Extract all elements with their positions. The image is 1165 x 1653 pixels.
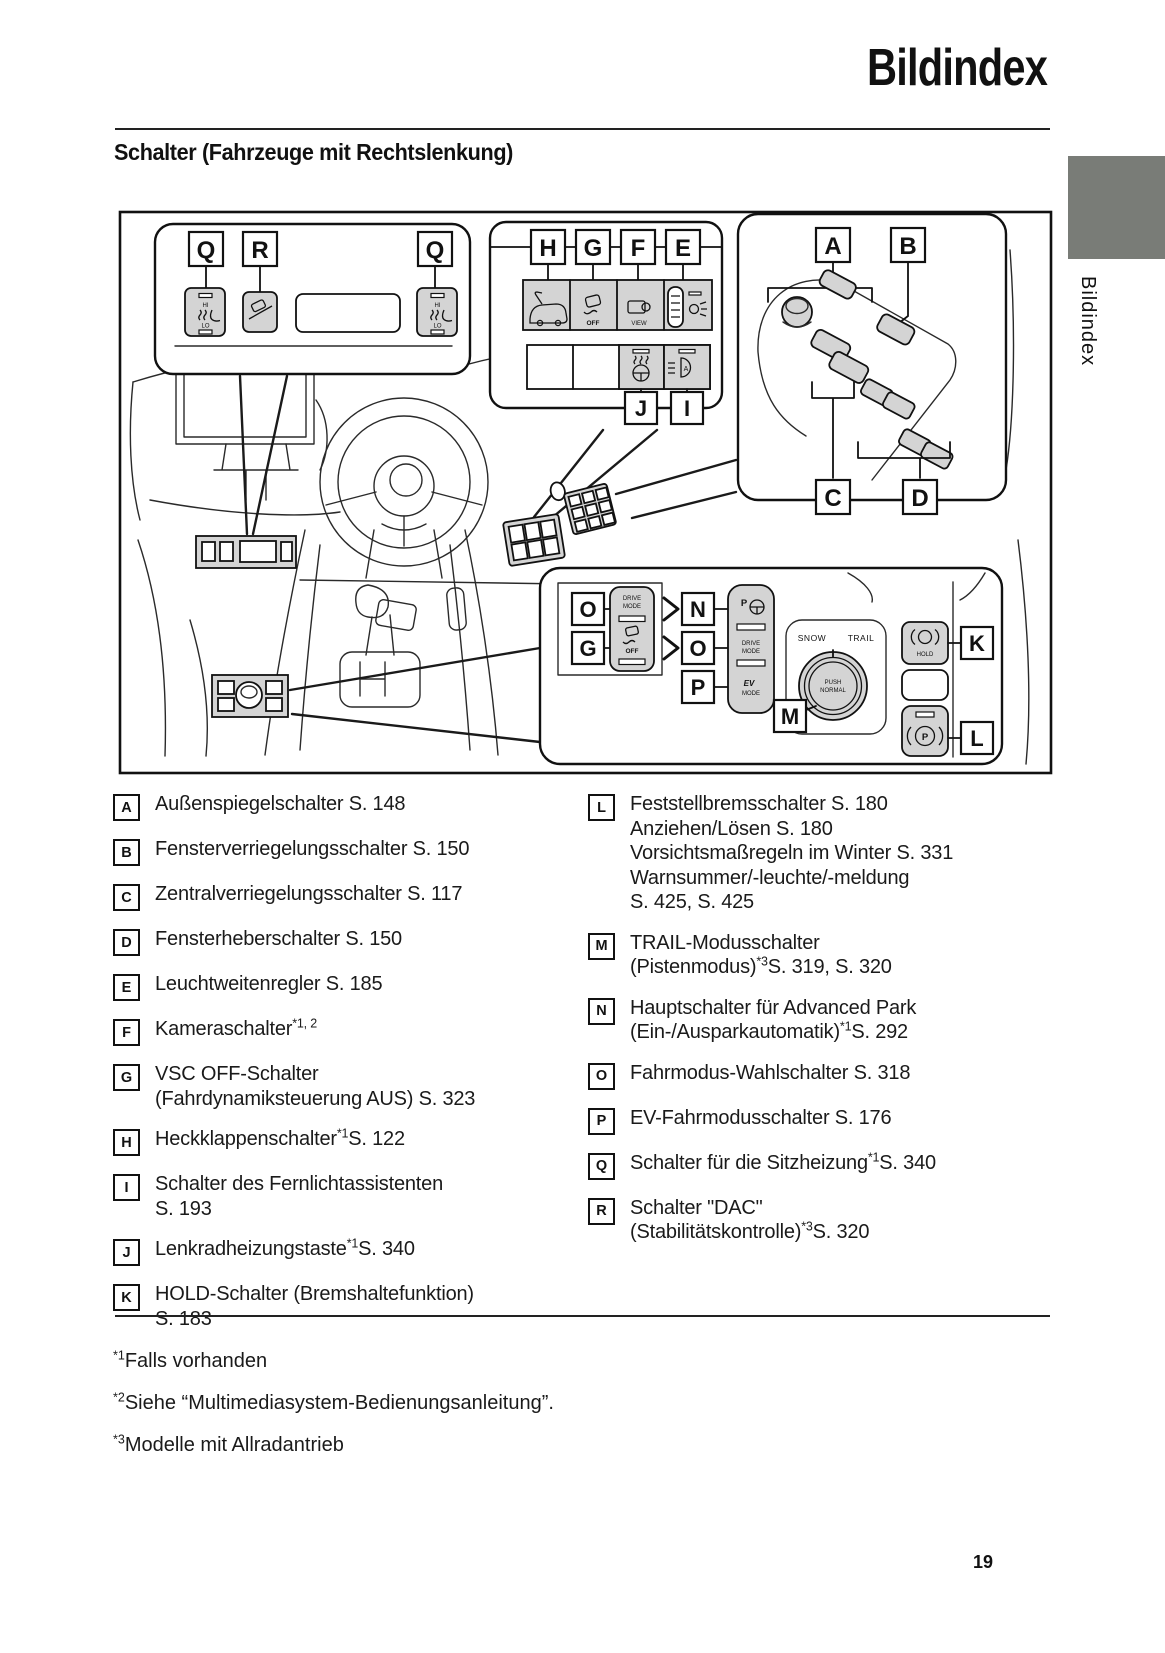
svg-text:N: N — [690, 597, 706, 622]
legend-right-column: L Feststellbremsschalter S. 180 Anziehen… — [588, 792, 1018, 1261]
legend-text: Kameraschalter — [155, 1018, 292, 1040]
callout-b: B — [891, 228, 925, 262]
svg-text:G: G — [579, 636, 596, 661]
legend-item-e: E Leuchtweitenregler S. 185 — [113, 972, 583, 1001]
svg-text:OFF: OFF — [587, 320, 600, 327]
legend-item-m: M TRAIL-Modusschalter (Pistenmodus)*3S. … — [588, 931, 1018, 980]
park-drive-ev-switch-stack: P DRIVE MODE EV MODE — [728, 585, 774, 713]
dac-switch — [243, 292, 277, 332]
svg-text:K: K — [969, 631, 985, 656]
footnote-marker: *1 — [840, 1019, 851, 1033]
footnote-text: Siehe “Multimediasystem-Bedienungsanleit… — [125, 1392, 554, 1414]
callout-c: C — [816, 480, 850, 514]
callout-q-left: Q — [189, 232, 223, 266]
legend-text: HOLD-Schalter (Bremshaltefunktion) — [155, 1283, 474, 1305]
callout-p: P — [682, 671, 714, 703]
legend-text: Hauptschalter für Advanced Park — [630, 997, 916, 1019]
callout-q-right: Q — [418, 232, 452, 266]
legend-text: Schalter "DAC" — [630, 1197, 763, 1219]
page-number: 19 — [973, 1552, 993, 1573]
legend-text: Vorsichtsmaßregeln im Winter S. 331 — [630, 842, 953, 864]
footnotes: *1Falls vorhanden *2Siehe “Multimediasys… — [113, 1350, 554, 1476]
legend-item-n: N Hauptschalter für Advanced Park (Ein-/… — [588, 996, 1018, 1045]
legend-text: Leuchtweitenregler S. 185 — [155, 973, 382, 995]
page-title: Bildindex — [867, 38, 1047, 98]
blank-display-slot — [296, 294, 400, 332]
legend-text: Fensterverriegelungsschalter S. 150 — [155, 838, 469, 860]
legend-letter-badge: G — [113, 1064, 140, 1091]
legend-text: Fensterheberschalter S. 150 — [155, 928, 402, 950]
legend-letter-badge: A — [113, 794, 140, 821]
footnote-rule — [115, 1315, 1050, 1317]
svg-text:LO: LO — [433, 324, 441, 330]
legend-text: (Pistenmodus) — [630, 956, 756, 978]
mirror-control-knob — [782, 297, 812, 327]
legend-letter-badge: R — [588, 1198, 615, 1225]
chapter-tab-label: Bildindex — [1076, 276, 1099, 366]
legend-letter-badge: C — [113, 884, 140, 911]
legend-letter-badge: M — [588, 933, 615, 960]
legend-text: Schalter für die Sitzheizung — [630, 1152, 868, 1174]
svg-text:A: A — [684, 366, 689, 373]
svg-text:DRIVE: DRIVE — [742, 641, 760, 647]
legend-text: Lenkradheizungstaste — [155, 1238, 347, 1260]
blank-switch-slot — [902, 670, 948, 700]
svg-text:HI: HI — [203, 303, 209, 309]
legend-letter-badge: B — [113, 839, 140, 866]
svg-text:O: O — [579, 597, 596, 622]
footnote-text: Modelle mit Allradantrieb — [125, 1434, 344, 1456]
legend-letter-badge: O — [588, 1063, 615, 1090]
footnote-marker: *1 — [868, 1150, 879, 1164]
callout-k: K — [961, 627, 993, 659]
svg-text:SNOW: SNOW — [798, 633, 826, 643]
legend-text: Schalter des Fernlichtassistenten — [155, 1173, 443, 1195]
svg-text:B: B — [899, 233, 916, 260]
callout-i: I — [671, 392, 703, 424]
svg-text:R: R — [251, 237, 268, 264]
svg-text:MODE: MODE — [742, 691, 760, 697]
legend-text: Außenspiegelschalter S. 148 — [155, 793, 405, 815]
legend-text: S. 183 — [155, 1308, 212, 1330]
panel-seat-heating: HI LO HI LO — [155, 224, 470, 374]
footnote-marker: *1 — [347, 1236, 358, 1250]
legend-item-l: L Feststellbremsschalter S. 180 Anziehen… — [588, 792, 1018, 915]
legend-text: S. 292 — [851, 1021, 908, 1043]
svg-text:LO: LO — [201, 324, 209, 330]
footnote-text: Falls vorhanden — [125, 1350, 267, 1372]
seat-heater-switch-right: HI LO — [417, 288, 457, 336]
drive-mode-vsc-buttons: DRIVE MODE OFF — [610, 587, 654, 671]
chapter-tab — [1068, 156, 1165, 259]
climate-strip — [196, 536, 296, 568]
svg-text:NORMAL: NORMAL — [820, 688, 846, 694]
vehicle-diagram: HI LO HI LO — [110, 205, 1055, 780]
svg-text:MODE: MODE — [742, 649, 760, 655]
svg-text:D: D — [911, 485, 928, 512]
legend-letter-badge: H — [113, 1129, 140, 1156]
legend-text: Heckklappenschalter — [155, 1128, 337, 1150]
legend-letter-badge: K — [113, 1284, 140, 1311]
svg-text:TRAIL: TRAIL — [848, 633, 875, 643]
footnote-marker: *1, 2 — [292, 1016, 317, 1030]
title-rule — [115, 128, 1050, 130]
legend-item-b: B Fensterverriegelungsschalter S. 150 — [113, 837, 583, 866]
hold-switch: HOLD — [902, 622, 948, 664]
callout-e: E — [666, 230, 700, 264]
manual-page: Bildindex Schalter (Fahrzeuge mit Rechts… — [0, 0, 1165, 1653]
legend-text: S. 340 — [879, 1152, 936, 1174]
section-title: Schalter (Fahrzeuge mit Rechtslenkung) — [114, 139, 513, 166]
svg-text:O: O — [689, 636, 706, 661]
legend-text: VSC OFF-Schalter — [155, 1063, 319, 1085]
legend-left-column: A Außenspiegelschalter S. 148 B Fensterv… — [113, 792, 583, 1347]
legend-item-o: O Fahrmodus-Wahlschalter S. 318 — [588, 1061, 1018, 1090]
legend-item-f: F Kameraschalter*1, 2 — [113, 1017, 583, 1046]
legend-text: S. 122 — [348, 1128, 405, 1150]
legend-letter-badge: L — [588, 794, 615, 821]
callout-g-inner: G — [572, 632, 604, 664]
callout-o-inner: O — [572, 593, 604, 625]
column-switch-panel — [503, 514, 565, 566]
legend-text: TRAIL-Modusschalter — [630, 932, 820, 954]
svg-text:OFF: OFF — [626, 648, 639, 655]
parking-brake-switch: P — [902, 706, 948, 756]
legend-item-d: D Fensterheberschalter S. 150 — [113, 927, 583, 956]
callout-f: F — [621, 230, 655, 264]
callout-a: A — [816, 228, 850, 262]
svg-text:P: P — [741, 598, 748, 609]
footnote-marker: *3 — [801, 1219, 812, 1233]
panel-console-switches: DRIVE MODE OFF P DRIVE MODE E — [540, 568, 1002, 764]
legend-text: (Ein-/Ausparkautomatik) — [630, 1021, 840, 1043]
svg-text:F: F — [631, 235, 646, 262]
legend-text: S. 340 — [358, 1238, 415, 1260]
callout-o: O — [682, 632, 714, 664]
svg-text:Q: Q — [426, 237, 445, 264]
svg-text:G: G — [584, 235, 603, 262]
svg-text:I: I — [684, 396, 690, 421]
svg-text:Q: Q — [197, 237, 216, 264]
svg-text:VIEW: VIEW — [631, 321, 647, 327]
callout-j: J — [625, 392, 657, 424]
console-mini-panel — [212, 675, 288, 717]
legend-letter-badge: F — [113, 1019, 140, 1046]
legend-letter-badge: E — [113, 974, 140, 1001]
callout-m: M — [774, 700, 806, 732]
panel-instrument-switches: OFF VIEW — [490, 222, 722, 424]
footnote-marker: *1 — [113, 1348, 125, 1362]
legend-text: S. 193 — [155, 1198, 212, 1220]
legend-letter-badge: J — [113, 1239, 140, 1266]
svg-text:HI: HI — [435, 303, 441, 309]
footnote-3: *3Modelle mit Allradantrieb — [113, 1434, 554, 1457]
footnote-2: *2Siehe “Multimediasystem-Bedienungsanle… — [113, 1392, 554, 1415]
legend-letter-badge: Q — [588, 1153, 615, 1180]
footnote-marker: *2 — [113, 1390, 125, 1404]
legend-text: Feststellbremsschalter S. 180 — [630, 793, 888, 815]
svg-text:DRIVE: DRIVE — [623, 596, 641, 602]
svg-text:MODE: MODE — [623, 604, 641, 610]
svg-text:A: A — [824, 233, 841, 260]
svg-text:L: L — [970, 726, 983, 751]
svg-text:M: M — [781, 704, 799, 729]
legend-item-p: P EV-Fahrmodusschalter S. 176 — [588, 1106, 1018, 1135]
legend-text: Warnsummer/-leuchte/-meldung — [630, 867, 909, 889]
callout-d: D — [903, 480, 937, 514]
legend-letter-badge: I — [113, 1174, 140, 1201]
footnote-1: *1Falls vorhanden — [113, 1350, 554, 1373]
callout-r: R — [243, 232, 277, 266]
legend-item-q: Q Schalter für die Sitzheizung*1S. 340 — [588, 1151, 1018, 1180]
footnote-marker: *3 — [113, 1432, 125, 1446]
svg-text:HOLD: HOLD — [917, 652, 934, 658]
legend-item-r: R Schalter "DAC" (Stabilitätskontrolle)*… — [588, 1196, 1018, 1245]
svg-text:EV: EV — [744, 679, 755, 688]
legend-letter-badge: N — [588, 998, 615, 1025]
footnote-marker: *3 — [756, 954, 767, 968]
svg-text:H: H — [539, 235, 556, 262]
legend-text: S. 425, S. 425 — [630, 891, 754, 913]
svg-text:P: P — [691, 675, 706, 700]
legend-item-i: I Schalter des Fernlichtassistenten S. 1… — [113, 1172, 583, 1221]
legend-letter-badge: D — [113, 929, 140, 956]
legend-text: (Stabilitätskontrolle) — [630, 1221, 801, 1243]
seat-heater-switch-left: HI LO — [185, 288, 225, 336]
callout-n: N — [682, 593, 714, 625]
legend-item-h: H Heckklappenschalter*1S. 122 — [113, 1127, 583, 1156]
legend-text: EV-Fahrmodusschalter S. 176 — [630, 1107, 891, 1129]
legend-letter-badge: P — [588, 1108, 615, 1135]
legend-text: S. 319, S. 320 — [768, 956, 892, 978]
svg-text:P: P — [922, 732, 929, 743]
legend-item-j: J Lenkradheizungstaste*1S. 340 — [113, 1237, 583, 1266]
legend-item-c: C Zentralverriegelungsschalter S. 117 — [113, 882, 583, 911]
legend-text: Anziehen/Lösen S. 180 — [630, 818, 833, 840]
legend-text: Fahrmodus-Wahlschalter S. 318 — [630, 1062, 910, 1084]
callout-h: H — [531, 230, 565, 264]
legend-item-a: A Außenspiegelschalter S. 148 — [113, 792, 583, 821]
callout-g: G — [576, 230, 610, 264]
legend-text: Zentralverriegelungsschalter S. 117 — [155, 883, 462, 905]
legend-item-g: G VSC OFF-Schalter (Fahrdynamiksteuerung… — [113, 1062, 583, 1111]
panel-door-switches: A B C D — [738, 214, 1006, 514]
svg-text:J: J — [635, 396, 647, 421]
legend-item-k: K HOLD-Schalter (Bremshaltefunktion) S. … — [113, 1282, 583, 1331]
footnote-marker: *1 — [337, 1126, 348, 1140]
legend-text: S. 320 — [813, 1221, 870, 1243]
legend-text: (Fahrdynamiksteuerung AUS) S. 323 — [155, 1088, 475, 1110]
callout-l: L — [961, 722, 993, 754]
svg-text:PUSH: PUSH — [825, 680, 842, 686]
svg-text:C: C — [824, 485, 841, 512]
svg-text:E: E — [675, 235, 691, 262]
